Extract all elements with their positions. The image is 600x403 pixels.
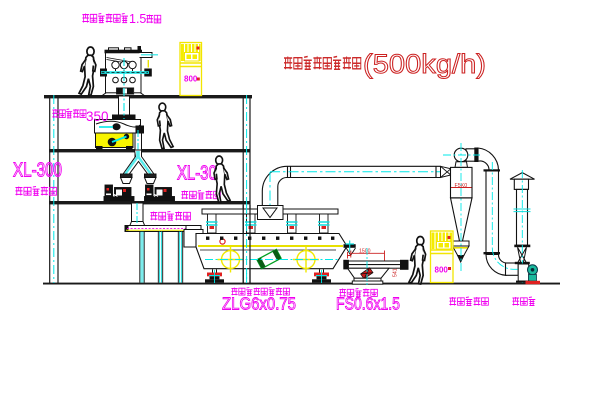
svg-text:1.5: 1.5: [129, 12, 146, 26]
svg-text:800: 800: [184, 75, 198, 84]
svg-text:1500: 1500: [359, 249, 371, 255]
svg-text:350: 350: [86, 109, 109, 124]
svg-text:541: 541: [393, 268, 399, 277]
svg-text:XL-300: XL-300: [13, 160, 62, 182]
svg-text:800: 800: [435, 266, 449, 275]
svg-text:ZLG6x0.75: ZLG6x0.75: [222, 294, 296, 314]
svg-text:(500kg/h): (500kg/h): [363, 49, 486, 79]
svg-text:FS0.6x1.5: FS0.6x1.5: [336, 294, 400, 314]
